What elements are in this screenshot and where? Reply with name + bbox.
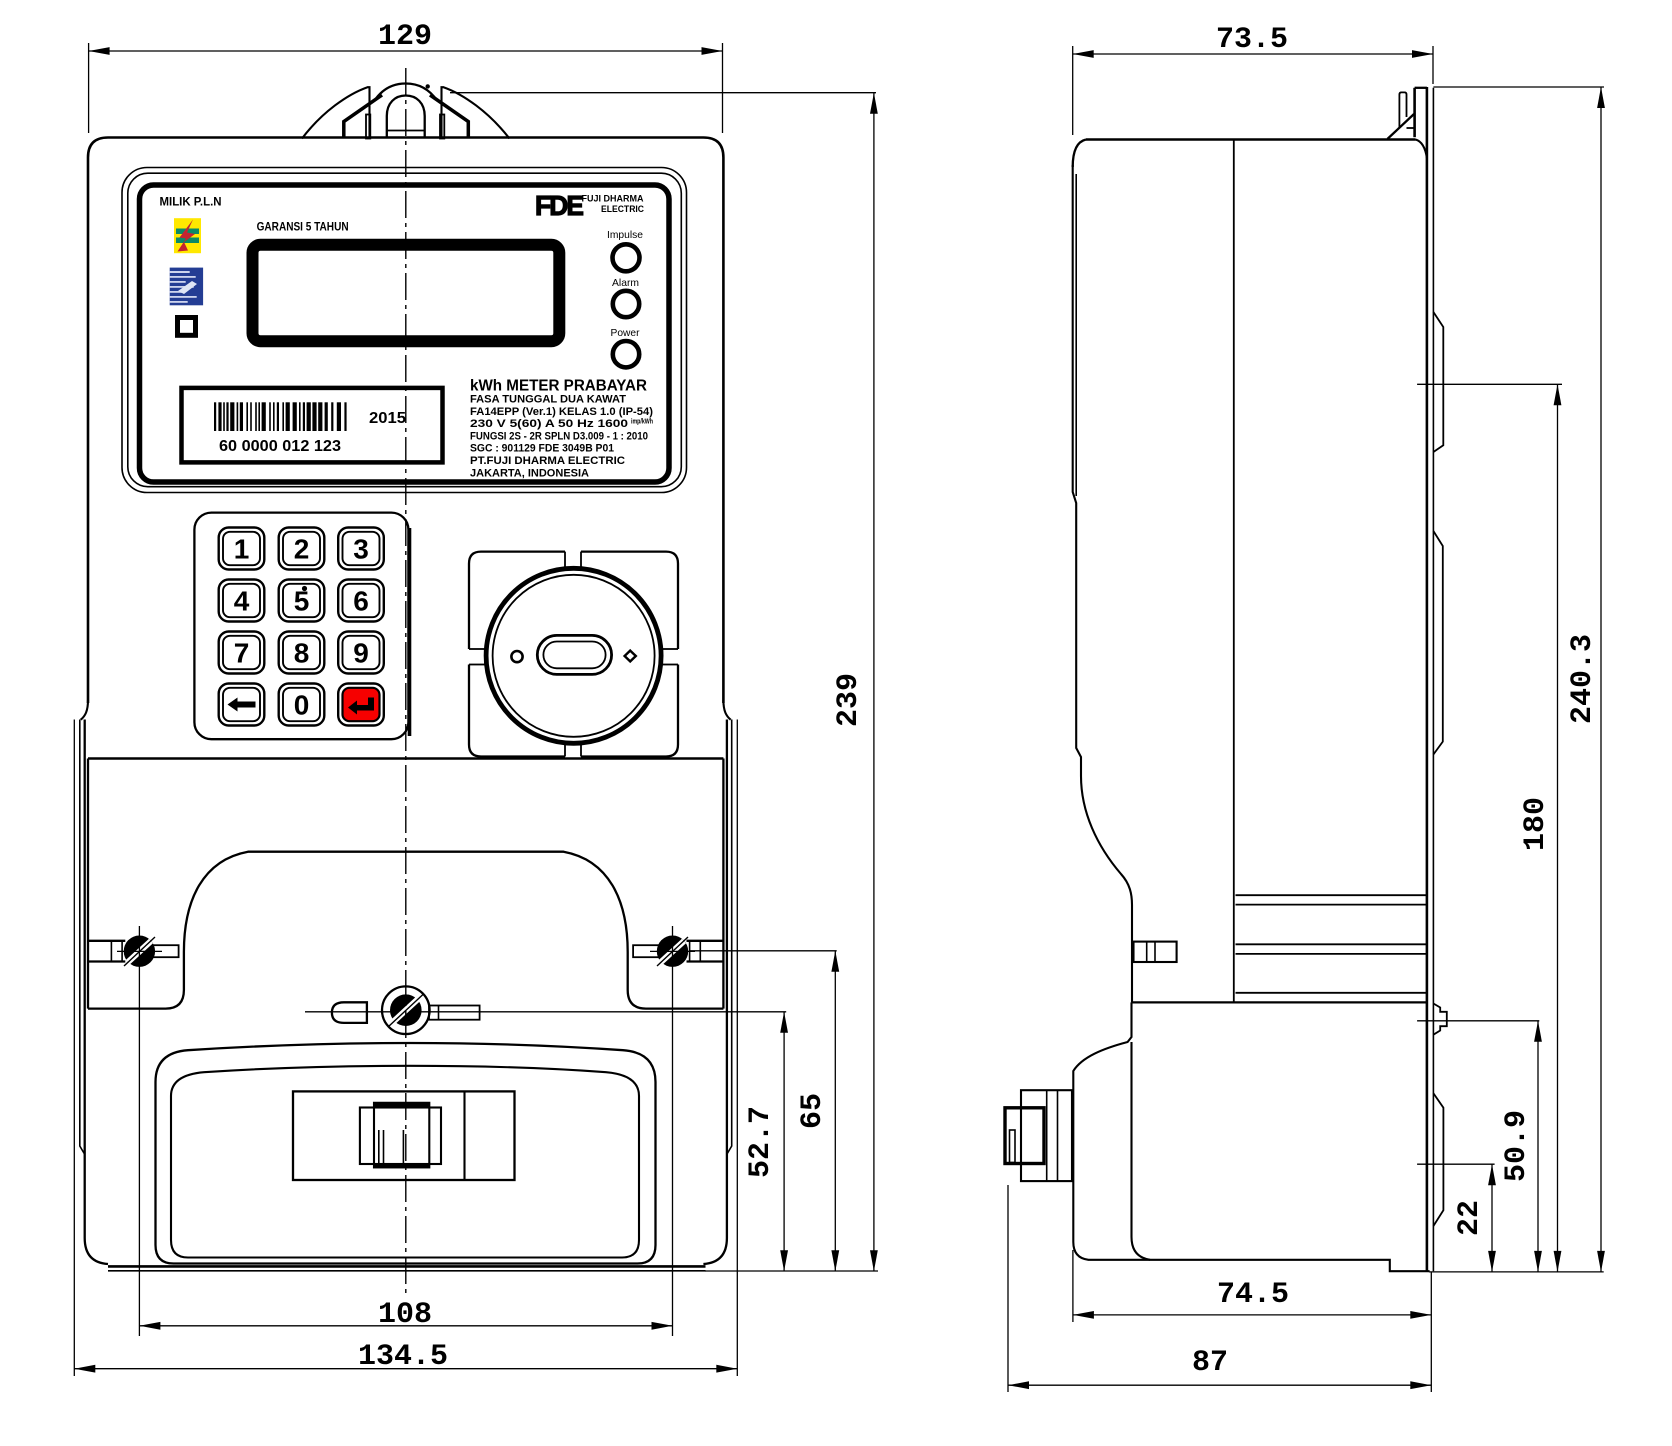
- svg-text:180: 180: [1519, 797, 1553, 851]
- svg-text:230 V 5(60) A 50 Hz 1600: 230 V 5(60) A 50 Hz 1600: [470, 418, 628, 430]
- svg-text:5: 5: [294, 586, 310, 617]
- svg-text:FA14EPP (Ver.1) KELAS 1.0 (I: FA14EPP (Ver.1) KELAS 1.0 (IP-54): [470, 406, 653, 418]
- svg-text:3: 3: [353, 534, 369, 565]
- svg-text:65: 65: [796, 1093, 830, 1129]
- svg-text:SGC : 901129 FDE 3049B P01: SGC : 901129 FDE 3049B P01: [470, 442, 614, 454]
- svg-text:50.9: 50.9: [1500, 1110, 1534, 1182]
- svg-text:239: 239: [832, 673, 866, 727]
- svg-text:52.7: 52.7: [744, 1106, 778, 1178]
- svg-text:FDE: FDE: [535, 190, 583, 221]
- svg-text:9: 9: [353, 638, 369, 669]
- svg-text:240.3: 240.3: [1566, 634, 1600, 724]
- svg-text:74.5: 74.5: [1217, 1278, 1289, 1312]
- svg-text:ELECTRIC: ELECTRIC: [601, 204, 644, 215]
- svg-text:4: 4: [234, 586, 250, 617]
- svg-text:6: 6: [353, 586, 369, 617]
- svg-text:0: 0: [294, 690, 310, 721]
- svg-text:2: 2: [294, 534, 310, 565]
- svg-text:PT.FUJI DHARMA ELECTRIC: PT.FUJI DHARMA ELECTRIC: [470, 455, 625, 467]
- svg-text:Alarm: Alarm: [612, 277, 639, 289]
- svg-text:imp/kWh: imp/kWh: [631, 417, 653, 426]
- svg-text:GARANSI 5 TAHUN: GARANSI 5 TAHUN: [257, 220, 349, 234]
- svg-text:1: 1: [234, 534, 250, 565]
- svg-text:kWh METER PRABAYAR: kWh METER PRABAYAR: [470, 378, 647, 395]
- svg-text:JAKARTA, INDONESIA: JAKARTA, INDONESIA: [470, 467, 589, 479]
- svg-text:60 0000 012 123: 60 0000 012 123: [219, 438, 341, 455]
- svg-text:134.5: 134.5: [358, 1340, 448, 1374]
- svg-text:8: 8: [294, 638, 310, 669]
- svg-text:87: 87: [1192, 1346, 1228, 1380]
- svg-text:73.5: 73.5: [1216, 23, 1288, 57]
- svg-text:22: 22: [1453, 1200, 1487, 1236]
- svg-text:FASA TUNGGAL DUA KAWAT: FASA TUNGGAL DUA KAWAT: [470, 393, 626, 405]
- svg-text:Power: Power: [611, 327, 640, 339]
- svg-text:129: 129: [378, 20, 432, 54]
- svg-text:2015: 2015: [369, 410, 406, 427]
- svg-text:MILIK P.L.N: MILIK P.L.N: [160, 197, 222, 209]
- svg-text:108: 108: [378, 1298, 432, 1332]
- svg-text:Impulse: Impulse: [607, 229, 643, 241]
- svg-text:7: 7: [234, 638, 250, 669]
- svg-text:FUNGSI 2S - 2R SPLN D3.009 -: FUNGSI 2S - 2R SPLN D3.009 - 1 : 2010: [470, 430, 648, 442]
